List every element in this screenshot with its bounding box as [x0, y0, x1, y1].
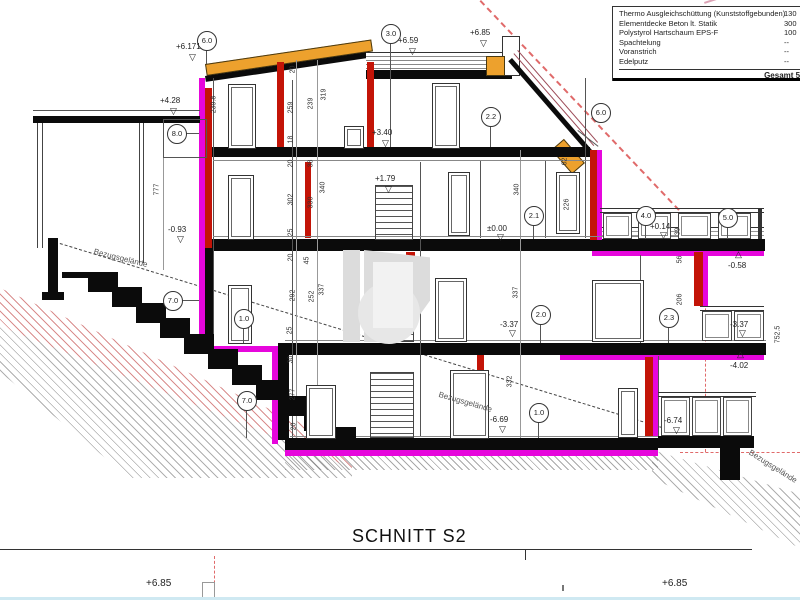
insulation-under-bottom-slab — [285, 450, 658, 456]
leader-line — [243, 329, 244, 343]
material-name: Thermo Ausgleichschüttung (Kunststoffgeb… — [619, 9, 785, 19]
materials-row: Polystyrol Hartschaum EPS-F100 — [613, 28, 800, 38]
roof-insulation-top-right — [486, 56, 505, 76]
leader-line — [668, 328, 669, 343]
footer-elevation-left: +6.85 — [146, 578, 171, 589]
canopy-wall — [37, 123, 43, 248]
elevation-label: +6.59 — [398, 36, 418, 45]
material-name: Elementdecke Beton lt. Statik — [619, 19, 717, 29]
elevation-marker: △ — [735, 250, 742, 259]
column-right-wall-mid — [694, 252, 703, 306]
stair-floor2 — [375, 185, 413, 240]
materials-row: Voranstrich-- — [613, 47, 800, 57]
dimension-label: 20 — [288, 241, 295, 275]
dimension-label: 292 — [290, 279, 297, 313]
retaining-wall-footing — [42, 292, 64, 300]
footer-elevation-right: +6.85 — [662, 578, 687, 589]
leader-line — [727, 228, 728, 239]
balcony-slab-bottom-right — [658, 436, 754, 448]
dimension-label: 239 — [308, 87, 315, 121]
materials-divider — [619, 69, 800, 70]
column-right-wall-bottom — [645, 357, 653, 437]
grid-bubble: 7.0 — [163, 291, 183, 311]
dimension-label: 752.5 — [775, 318, 782, 352]
dimension-label: 332 — [507, 365, 514, 399]
elevation-marker: ▽ — [177, 235, 184, 244]
dimension-label: 319 — [321, 78, 328, 112]
insulation-right-wall-upper — [597, 150, 602, 240]
column-right-wall-upper — [590, 150, 597, 240]
railing-panel — [678, 213, 711, 239]
grid-bubble: 1.0 — [529, 403, 549, 423]
column-attic-1 — [277, 62, 284, 147]
materials-row: Elementdecke Beton lt. Statik300 — [613, 19, 800, 29]
stair-basement — [370, 372, 414, 438]
leader-line — [645, 226, 646, 239]
dimension-label: 45 — [304, 244, 311, 278]
grid-bubble: 2.2 — [481, 107, 501, 127]
dimension-label: 277 — [290, 378, 297, 412]
grid-bubble: 2.1 — [524, 206, 544, 226]
dimension-label: 38 — [308, 147, 315, 181]
dimension-label: 302 — [288, 183, 295, 217]
elevation-marker: ▽ — [382, 139, 389, 148]
railing-panel — [723, 397, 752, 436]
door-floor2-left — [228, 175, 254, 240]
material-name: Voranstrich — [619, 47, 657, 57]
wall-line — [585, 78, 586, 238]
elevation-label: +4.28 — [160, 96, 180, 105]
footer-tick-mark — [562, 585, 564, 591]
dimension-label: 337 — [319, 273, 326, 307]
dimension-label: 337 — [513, 276, 520, 310]
canopy-post — [139, 123, 144, 263]
railing-end-post — [758, 208, 762, 239]
leader-line — [538, 423, 539, 438]
elevation-marker: ▽ — [739, 329, 746, 338]
elevation-label: +6.171 — [176, 42, 201, 51]
leader-line — [246, 411, 247, 438]
retaining-wall-left — [48, 238, 58, 296]
pink-diagonal-top — [704, 0, 735, 4]
title-tick — [525, 549, 526, 560]
grid-bubble: 2.0 — [531, 305, 551, 325]
material-name: Edelputz — [619, 57, 648, 67]
support-wall-bottom-right — [720, 448, 740, 480]
material-value: -- — [784, 38, 789, 48]
dimension-label: 777 — [154, 173, 161, 207]
grid-bubble: 7.0 — [237, 391, 257, 411]
materials-row: Edelputz-- — [613, 57, 800, 67]
material-value: 130 — [784, 9, 797, 19]
elevation-marker: ▽ — [673, 426, 680, 435]
materials-row: Thermo Ausgleichschüttung (Kunststoffgeb… — [613, 9, 800, 19]
dimension-label: 239.8 — [211, 88, 218, 122]
title-underline — [0, 549, 752, 550]
elevation-marker: ▽ — [499, 425, 506, 434]
materials-bottom-border — [613, 78, 800, 81]
elevation-label: +1.79 — [375, 174, 395, 183]
dimension-label: 252 — [309, 280, 316, 314]
window-floor1-right — [592, 280, 644, 342]
footer-small-box — [202, 582, 215, 598]
window-floor2-center — [448, 172, 470, 236]
window-attic-right — [432, 83, 460, 149]
grid-bubble: 2.3 — [659, 308, 679, 328]
leader-line — [181, 300, 199, 301]
section-drawing-page: Thermo Ausgleichschüttung (Kunststoffgeb… — [0, 0, 800, 600]
dimension-label: 30 — [288, 343, 295, 377]
dimension-label: 20 — [290, 53, 297, 87]
elevation-marker: ▽ — [497, 233, 504, 242]
drawing-title: SCHNITT S2 — [352, 526, 467, 547]
terrain-label: Bezugsgelände — [747, 448, 799, 485]
material-value: -- — [784, 47, 789, 57]
slab-level-minus3 — [278, 343, 766, 355]
leader-line — [206, 50, 207, 64]
elevation-label: +6.85 — [470, 28, 490, 37]
elevation-label: -4.02 — [730, 361, 748, 370]
ceiling-line — [213, 160, 590, 161]
insulation-right-wall-mid — [703, 252, 708, 306]
window-attic-left — [228, 84, 256, 149]
dimension-label: 20 — [288, 147, 295, 181]
elevation-marker: ▽ — [409, 47, 416, 56]
dimension-label: 39 — [675, 215, 682, 249]
elevation-marker: ▽ — [385, 185, 392, 194]
elevation-marker: ▽ — [660, 231, 667, 240]
elevation-label: -6.74 — [664, 416, 682, 425]
dimension-label: 259 — [288, 91, 295, 125]
grid-bubble: 5.0 — [718, 208, 738, 228]
dimension-label: 62 — [562, 145, 569, 179]
dimension-label: 226 — [564, 188, 571, 222]
dimension-label: 330 — [308, 186, 315, 220]
door-basement-left — [306, 385, 336, 439]
materials-table: Thermo Ausgleichschüttung (Kunststoffgeb… — [612, 6, 800, 81]
wall-line — [480, 160, 481, 238]
elevation-marker: △ — [737, 350, 744, 359]
dimension-label: 340 — [320, 171, 327, 205]
railing-panel — [603, 213, 632, 239]
slab-attic-floor — [205, 147, 590, 157]
axis-dashed-horizontal — [680, 452, 800, 453]
material-value: 300 — [784, 19, 797, 29]
materials-row: Spachtelung-- — [613, 38, 800, 48]
material-name: Polystyrol Hartschaum EPS-F — [619, 28, 718, 38]
grid-bubble: 1.0 — [234, 309, 254, 329]
elevation-label: -0.93 — [168, 225, 186, 234]
dimension-label: 340 — [514, 173, 521, 207]
door-floor1-center — [435, 278, 467, 342]
elevation-marker: ▽ — [509, 329, 516, 338]
door-basement-right — [618, 388, 638, 438]
material-name: Spachtelung — [619, 38, 661, 48]
elevation-label: +3.40 — [372, 128, 392, 137]
elevation-label: -6.69 — [490, 415, 508, 424]
door-attic-center — [344, 126, 364, 149]
leader-line — [533, 226, 534, 239]
material-value: 100 — [784, 28, 797, 38]
elevation-marker: ▽ — [189, 53, 196, 62]
parapet-panel — [702, 311, 732, 341]
dim-line — [317, 60, 318, 410]
grid-bubble: 6.0 — [591, 103, 611, 123]
leader-line — [490, 127, 491, 147]
elevation-marker: ▽ — [170, 107, 177, 116]
grid-bubble: 8.0 — [167, 124, 187, 144]
materials-rows: Thermo Ausgleichschüttung (Kunststoffgeb… — [613, 9, 800, 67]
insulation-under-slab-right — [560, 355, 764, 360]
underslab-hatch — [285, 456, 658, 470]
leader-line — [540, 325, 541, 343]
railing-panel — [692, 397, 721, 436]
dimension-label: 20 — [291, 410, 298, 444]
wall-line — [545, 160, 546, 238]
dimension-label: 206 — [677, 283, 684, 317]
elevation-marker: ▽ — [480, 39, 487, 48]
elevation-label: -0.58 — [728, 261, 746, 270]
material-value: -- — [784, 57, 789, 67]
